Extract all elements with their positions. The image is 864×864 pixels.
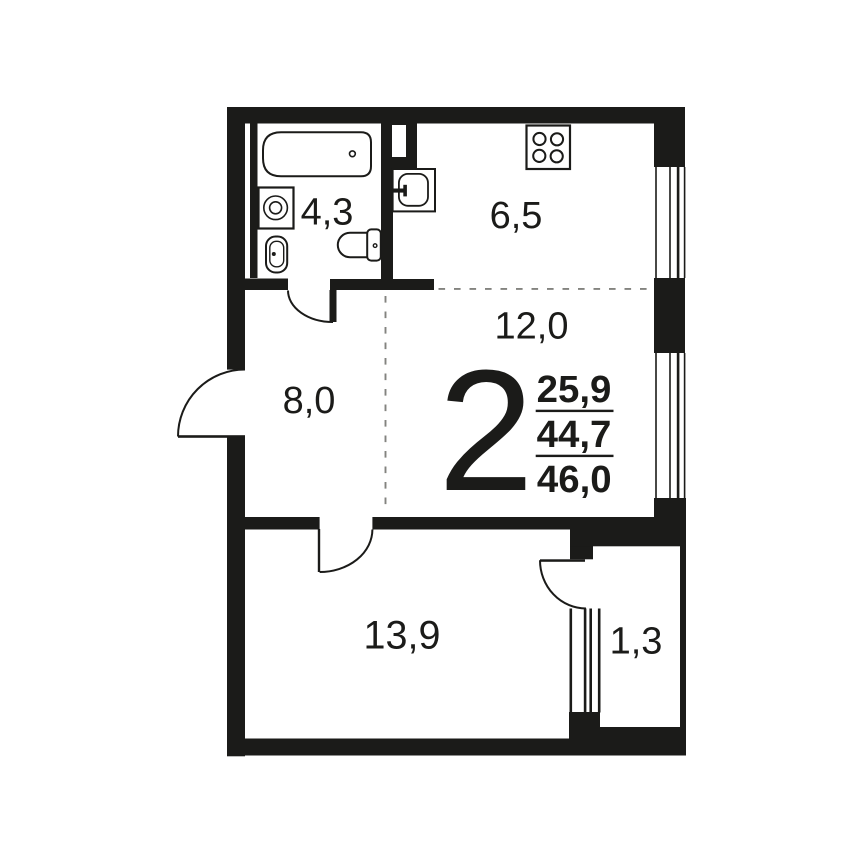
svg-text:13,9: 13,9: [364, 614, 441, 658]
svg-text:1,3: 1,3: [610, 621, 663, 663]
svg-text:44,7: 44,7: [537, 413, 612, 456]
svg-text:4,3: 4,3: [301, 192, 354, 234]
svg-text:8,0: 8,0: [283, 380, 336, 422]
svg-text:46,0: 46,0: [537, 458, 612, 501]
svg-text:2: 2: [438, 334, 534, 527]
svg-text:6,5: 6,5: [490, 195, 543, 237]
svg-text:25,9: 25,9: [537, 368, 612, 411]
